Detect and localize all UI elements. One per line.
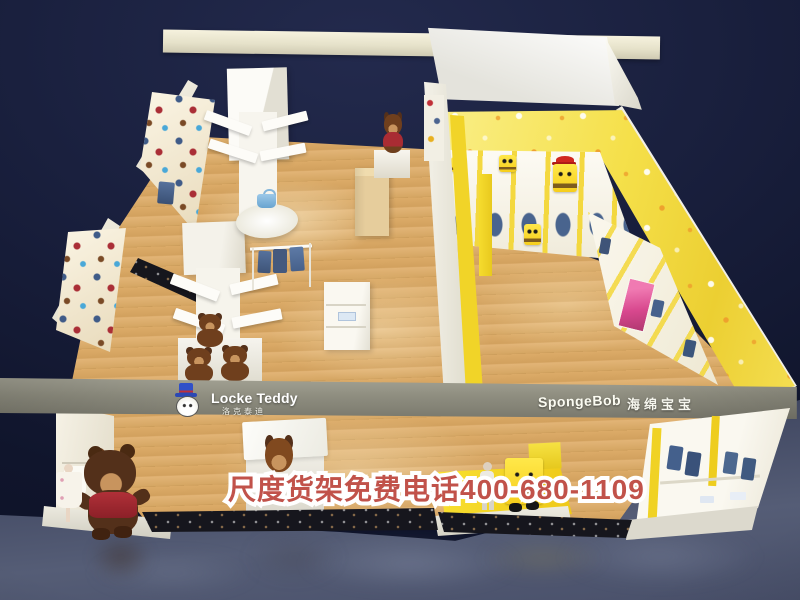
pedestal — [374, 150, 410, 178]
teddy-reflection — [90, 533, 152, 581]
teddy-bear-figure — [196, 314, 224, 348]
locke-teddy-brand-text: Locke Teddy — [211, 390, 298, 406]
clothing-rack-leg — [252, 248, 254, 290]
teddy-leg — [114, 526, 132, 538]
hotline-overlay-text: 尺度货架免费电话400-680-1109 — [228, 468, 645, 508]
teddy-body — [197, 329, 223, 347]
mannequin-dress — [56, 472, 82, 508]
teddy-body — [221, 362, 249, 381]
table-reflection — [248, 534, 340, 580]
denim-dress — [157, 181, 175, 204]
teddy-bear-figure — [382, 114, 404, 154]
folded-clothes-stack — [730, 492, 746, 500]
yellow-reflection — [478, 538, 608, 578]
rack-garment — [273, 249, 287, 273]
logo-bear-head-icon — [176, 396, 199, 417]
spongebob-brand-text: SpongeBob — [538, 392, 621, 410]
child-mannequin — [54, 464, 84, 522]
display-tower — [182, 221, 246, 275]
gondola-shelf-line — [326, 304, 366, 306]
wooden-counter — [355, 168, 389, 236]
rack-garment — [289, 247, 305, 272]
locke-teddy-logo — [171, 383, 203, 415]
gondola-label — [338, 312, 356, 321]
clothing-rack-leg — [309, 243, 311, 287]
spongebob-figure — [553, 164, 577, 192]
teddy-body — [383, 132, 403, 154]
rack-garment — [257, 251, 271, 274]
spongebob-figure — [524, 224, 541, 245]
teddy-bear-figure — [184, 348, 214, 384]
divider-merchandise — [424, 95, 444, 161]
teddy-sweater — [89, 492, 137, 518]
fitting-room-wall — [428, 27, 628, 112]
spongebob-figure — [499, 155, 516, 172]
yellow-column — [479, 174, 492, 276]
mannequin-leg — [66, 508, 70, 522]
teddy-bear-figure — [220, 346, 250, 382]
store-3d-render: Locke Teddy 洛克泰迪 SpongeBob 海绵宝宝 — [0, 0, 800, 600]
giant-teddy-figure — [74, 444, 152, 538]
spongebob-brand-cn: 海绵宝宝 — [627, 394, 695, 413]
teddy-leg — [92, 528, 110, 540]
gondola-shelf-line — [326, 326, 366, 328]
locke-teddy-brand-cn: 洛克泰迪 — [222, 406, 266, 417]
folded-clothes-stack — [700, 496, 714, 503]
blue-bag — [257, 194, 276, 208]
